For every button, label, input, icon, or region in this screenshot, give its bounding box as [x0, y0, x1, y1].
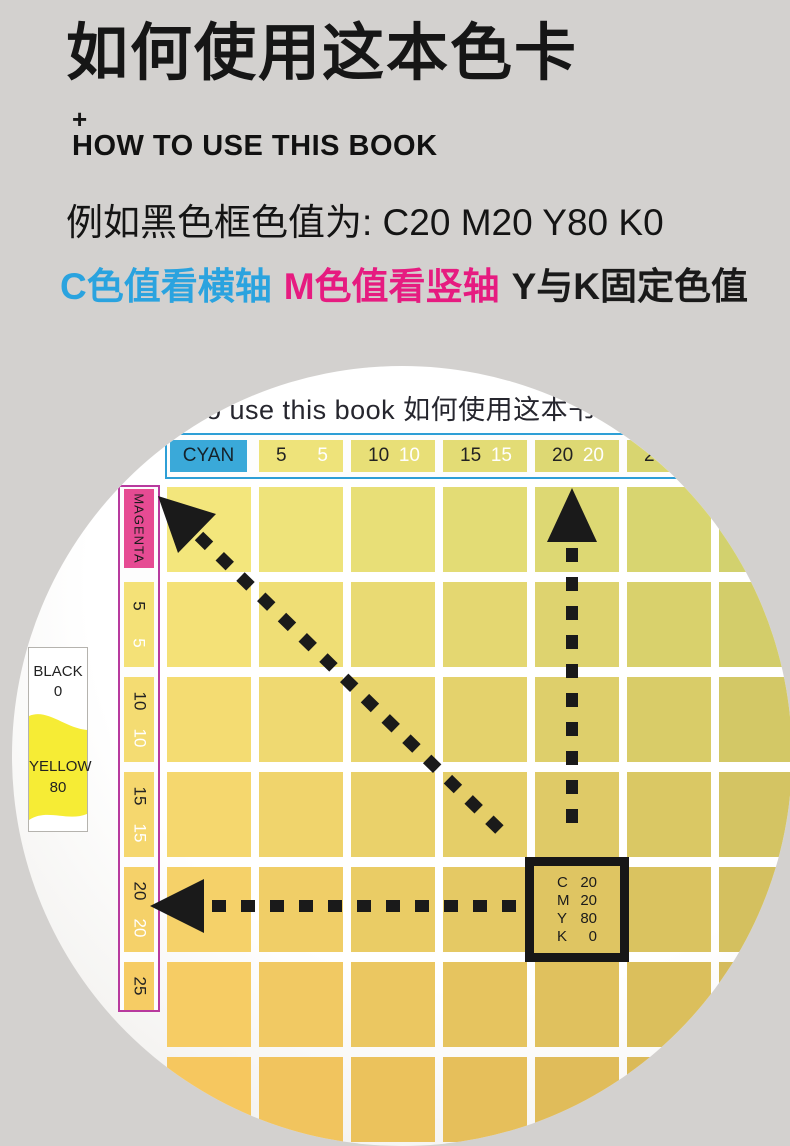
swatch-cell: [535, 677, 619, 762]
swatch-cell: [443, 962, 527, 1047]
magenta-value-white: 15: [129, 823, 149, 842]
swatch-cell: [351, 487, 435, 572]
swatch-cell: [351, 1057, 435, 1142]
swatch-cell: [167, 582, 251, 667]
swatch-cell: [443, 582, 527, 667]
swatch-cell: [259, 582, 343, 667]
page-title: 如何使用这本色卡: [66, 20, 578, 88]
magenta-axis-label: MAGENTA: [124, 489, 154, 568]
magenta-value-black: 5: [129, 602, 149, 611]
swatch-cell: [351, 867, 435, 952]
swatch-cell: [443, 487, 527, 572]
cyan-value-black: 15: [460, 445, 481, 467]
swatch-cell: [259, 1057, 343, 1142]
photo-page-title: to use this book 如何使用这本书: [198, 388, 596, 427]
target-channel: K: [557, 928, 571, 946]
swatch-cell: [719, 1057, 790, 1142]
magenta-value-white: 5: [129, 638, 149, 647]
target-cmyk-row: Y80: [557, 910, 597, 928]
legend-line: C色值看横轴M色值看竖轴Y与K固定色值: [60, 256, 760, 310]
swatch-cell: [167, 1057, 251, 1142]
cyan-value-white: 10: [399, 445, 420, 467]
cyan-value-black: 20: [552, 445, 573, 467]
tab-yellow-value: YELLOW 80: [29, 756, 87, 798]
swatch-cell: [167, 962, 251, 1047]
target-channel: C: [557, 874, 571, 892]
swatch-cell: [719, 582, 790, 667]
swatch-cell: [535, 582, 619, 667]
swatch-cell: [535, 487, 619, 572]
page-tab: BLACK 0 YELLOW 80: [28, 647, 88, 832]
magenta-axis-box: MAGENTA 551010151520202525: [118, 485, 160, 1012]
swatch-cell: [259, 867, 343, 952]
cyan-value-black: 25: [644, 445, 665, 467]
swatch-cell: [627, 582, 711, 667]
swatch-cell: [627, 677, 711, 762]
swatch-cell: [443, 1057, 527, 1142]
swatch-cell: [443, 772, 527, 857]
swatch-cell: [719, 962, 790, 1047]
cyan-value-white: 25: [675, 445, 696, 467]
cyan-value-white: 15: [491, 445, 512, 467]
tab-black-label: BLACK: [33, 663, 82, 680]
tab-yellow-number: 80: [50, 779, 67, 796]
target-cmyk-row: M20: [557, 892, 597, 910]
tab-black-number: 0: [54, 683, 62, 700]
colorcard-photo: to use this book 如何使用这本书 CYAN MAGENTA 55…: [12, 366, 790, 1146]
cyan-axis-cell: 2020: [535, 440, 619, 472]
swatch-cell: [719, 487, 790, 572]
magenta-axis-cell: 55: [124, 582, 154, 667]
swatch-cell: [535, 1057, 619, 1142]
cyan-axis-cell: 1010: [351, 440, 435, 472]
cyan-axis-cell: 1515: [443, 440, 527, 472]
page-subtitle: HOW TO USE THIS BOOK: [72, 130, 438, 163]
cyan-axis-cell: 55: [259, 440, 343, 472]
target-cmyk-row: C20: [557, 874, 597, 892]
cyan-axis-label: CYAN: [170, 440, 247, 472]
swatch-cell: [259, 487, 343, 572]
screenshot-root: 如何使用这本色卡 + HOW TO USE THIS BOOK 例如黑色框色值为…: [0, 0, 790, 1140]
magenta-value-white: 10: [129, 728, 149, 747]
swatch-cell: [351, 772, 435, 857]
swatch-cell: [351, 962, 435, 1047]
magenta-axis-cell: 1010: [124, 677, 154, 762]
target-value: 20: [571, 874, 597, 892]
magenta-axis-cell: 1515: [124, 772, 154, 857]
tab-yellow-label: YELLOW: [29, 758, 92, 775]
swatch-cell: [443, 867, 527, 952]
cyan-axis-cell: 2525: [627, 440, 711, 472]
swatch-cell: [167, 487, 251, 572]
magenta-value-white: 20: [129, 918, 149, 937]
cyan-value-white: 20: [583, 445, 604, 467]
legend-part-2: Y与K固定色值: [512, 266, 748, 307]
magenta-value-black: 15: [129, 787, 149, 806]
swatch-cell: [627, 772, 711, 857]
target-value: 0: [571, 928, 597, 946]
swatch-cell: [719, 677, 790, 762]
swatch-cell: [167, 677, 251, 762]
target-value: 80: [571, 910, 597, 928]
legend-part-0: C色值看横轴: [60, 266, 272, 307]
swatch-cell: [259, 962, 343, 1047]
tab-black-value: BLACK 0: [29, 662, 87, 702]
magenta-axis-label-text: MAGENTA: [132, 493, 147, 563]
example-line: 例如黑色框色值为: C20 M20 Y80 K0: [66, 192, 664, 246]
swatch-cell: [627, 867, 711, 952]
target-channel: M: [557, 892, 571, 910]
magenta-axis-cell: 2020: [124, 867, 154, 952]
target-value: 20: [571, 892, 597, 910]
cyan-value-black: 5: [276, 445, 287, 467]
swatch-cell: [535, 962, 619, 1047]
swatch-cell: [627, 1057, 711, 1142]
swatch-cell: [351, 677, 435, 762]
magenta-value-black: 25: [129, 977, 149, 996]
swatch-cell: [627, 487, 711, 572]
legend-part-1: M色值看竖轴: [284, 266, 500, 307]
swatch-cell: [535, 772, 619, 857]
swatch-cell: [351, 582, 435, 667]
target-channel: Y: [557, 910, 571, 928]
swatch-cell: [259, 772, 343, 857]
swatch-cell: [259, 677, 343, 762]
swatch-cell: [443, 677, 527, 762]
swatch-cell: [719, 772, 790, 857]
swatch-cell: [167, 867, 251, 952]
swatch-cell: [167, 772, 251, 857]
target-swatch-box: C20M20Y80K0: [525, 857, 629, 962]
cyan-value-black: 10: [368, 445, 389, 467]
magenta-value-black: 10: [129, 692, 149, 711]
target-cmyk-row: K0: [557, 928, 597, 946]
cyan-value-white: 5: [317, 445, 328, 467]
swatch-cell: [719, 867, 790, 952]
swatch-cell: [627, 962, 711, 1047]
magenta-axis-cell: 2525: [124, 962, 154, 1012]
magenta-value-black: 20: [129, 882, 149, 901]
